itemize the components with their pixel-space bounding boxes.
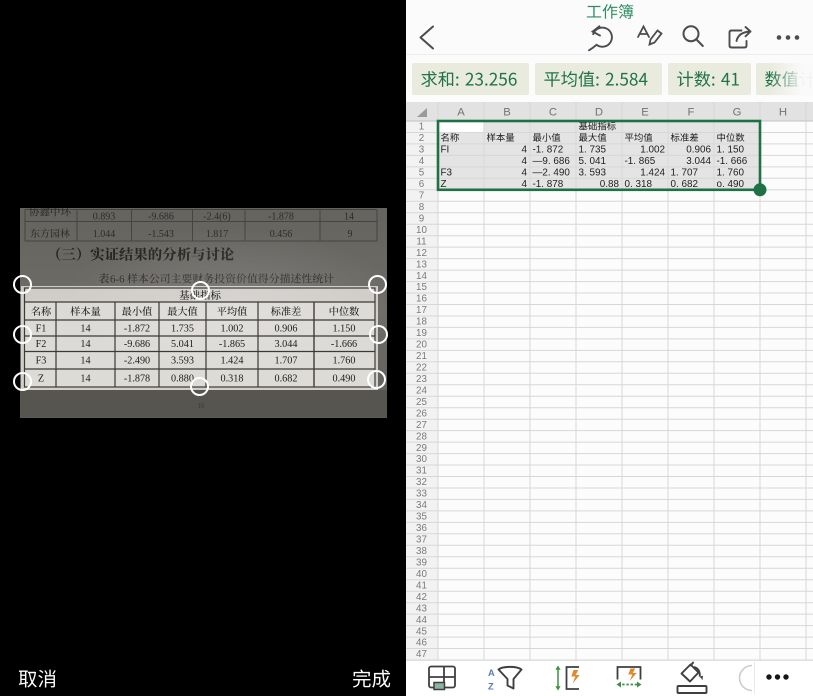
svg-text:D: D bbox=[595, 107, 603, 119]
svg-text:45: 45 bbox=[416, 626, 427, 637]
svg-text:Z: Z bbox=[441, 179, 447, 190]
svg-text:3.593: 3.593 bbox=[171, 356, 194, 367]
svg-text:36: 36 bbox=[416, 523, 427, 534]
svg-text:28: 28 bbox=[416, 431, 427, 442]
svg-text:3.044: 3.044 bbox=[275, 339, 298, 350]
svg-text:11: 11 bbox=[416, 236, 426, 247]
svg-text:1: 1 bbox=[419, 122, 424, 133]
svg-text:FI: FI bbox=[441, 144, 450, 155]
svg-text:A: A bbox=[457, 107, 465, 119]
svg-text:23: 23 bbox=[416, 374, 427, 385]
svg-text:35: 35 bbox=[416, 512, 427, 523]
svg-text:-1.878: -1.878 bbox=[124, 374, 150, 385]
svg-text:1.002: 1.002 bbox=[221, 324, 244, 335]
svg-text:32: 32 bbox=[416, 477, 427, 488]
svg-text:5.041: 5.041 bbox=[171, 339, 194, 350]
svg-text:34: 34 bbox=[416, 500, 427, 511]
svg-text:4: 4 bbox=[522, 167, 528, 178]
svg-text:15: 15 bbox=[416, 282, 427, 293]
svg-text:Z: Z bbox=[488, 682, 494, 692]
svg-text:3.044: 3.044 bbox=[686, 156, 711, 167]
svg-text:0.682: 0.682 bbox=[275, 374, 298, 385]
svg-text:14: 14 bbox=[80, 339, 90, 350]
svg-text:33: 33 bbox=[416, 489, 427, 500]
svg-text:-1.878: -1.878 bbox=[268, 212, 294, 223]
svg-text:1. 760: 1. 760 bbox=[717, 167, 745, 178]
svg-text:46: 46 bbox=[416, 638, 427, 649]
svg-text:1. 150: 1. 150 bbox=[717, 144, 745, 155]
svg-text:8: 8 bbox=[419, 202, 425, 213]
svg-text:40: 40 bbox=[416, 569, 427, 580]
svg-text:-1. 865: -1. 865 bbox=[625, 156, 656, 167]
svg-text:3. 593: 3. 593 bbox=[579, 167, 607, 178]
svg-text:26: 26 bbox=[416, 408, 427, 419]
svg-text:9: 9 bbox=[348, 229, 353, 240]
svg-text:2: 2 bbox=[419, 133, 424, 144]
svg-text:37: 37 bbox=[416, 535, 427, 546]
svg-text:0.88: 0.88 bbox=[600, 179, 620, 190]
svg-text:5: 5 bbox=[419, 168, 425, 179]
svg-text:29: 29 bbox=[416, 443, 427, 454]
svg-text:22: 22 bbox=[416, 363, 427, 374]
svg-text:-2.490: -2.490 bbox=[124, 356, 150, 367]
svg-text:A: A bbox=[488, 668, 495, 678]
svg-text:-9.686: -9.686 bbox=[148, 212, 174, 223]
svg-text:24: 24 bbox=[416, 385, 427, 396]
svg-text:0.906: 0.906 bbox=[275, 324, 298, 335]
svg-text:1.424: 1.424 bbox=[640, 167, 665, 178]
svg-text:B: B bbox=[503, 107, 511, 119]
svg-text:38: 38 bbox=[416, 546, 427, 557]
svg-text:H: H bbox=[779, 107, 787, 119]
svg-text:-1.666: -1.666 bbox=[331, 339, 357, 350]
svg-text:41: 41 bbox=[416, 580, 427, 591]
svg-text:16: 16 bbox=[416, 294, 427, 305]
svg-text:0.490: 0.490 bbox=[333, 374, 356, 385]
svg-text:1.760: 1.760 bbox=[333, 356, 356, 367]
svg-text:1. 707: 1. 707 bbox=[671, 167, 698, 178]
svg-text:4: 4 bbox=[419, 156, 425, 167]
svg-text:1.424: 1.424 bbox=[221, 356, 244, 367]
svg-text:-9.686: -9.686 bbox=[124, 339, 150, 350]
svg-text:13: 13 bbox=[416, 259, 427, 270]
svg-text:0.893: 0.893 bbox=[93, 212, 116, 223]
svg-text:0. 682: 0. 682 bbox=[671, 179, 698, 190]
svg-text:9: 9 bbox=[419, 213, 424, 224]
svg-text:14: 14 bbox=[80, 374, 90, 385]
svg-text:27: 27 bbox=[416, 420, 427, 431]
svg-text:43: 43 bbox=[416, 603, 427, 614]
svg-text:4: 4 bbox=[522, 156, 528, 167]
svg-text:14: 14 bbox=[344, 212, 354, 223]
svg-text:1.044: 1.044 bbox=[93, 229, 116, 240]
svg-text:-1. 666: -1. 666 bbox=[717, 156, 748, 167]
svg-text:18: 18 bbox=[416, 317, 427, 328]
svg-text:1. 735: 1. 735 bbox=[579, 144, 607, 155]
svg-text:-1.872: -1.872 bbox=[124, 324, 150, 335]
svg-text:3: 3 bbox=[419, 145, 425, 156]
svg-text:5. 041: 5. 041 bbox=[579, 156, 607, 167]
svg-text:20: 20 bbox=[416, 340, 427, 351]
svg-text:14: 14 bbox=[80, 356, 90, 367]
svg-text:—9. 686: —9. 686 bbox=[533, 156, 571, 167]
svg-text:44: 44 bbox=[416, 615, 427, 626]
svg-text:F: F bbox=[688, 107, 695, 119]
svg-text:0.318: 0.318 bbox=[221, 374, 244, 385]
svg-text:31: 31 bbox=[416, 466, 427, 477]
svg-text:0. 318: 0. 318 bbox=[625, 179, 653, 190]
svg-text:—2. 490: —2. 490 bbox=[533, 167, 571, 178]
svg-text:39: 39 bbox=[416, 558, 427, 569]
svg-text:-2.4(6): -2.4(6) bbox=[203, 212, 231, 223]
svg-text:7: 7 bbox=[419, 191, 424, 202]
svg-text:o. 490: o. 490 bbox=[717, 179, 745, 190]
svg-text:19: 19 bbox=[416, 328, 427, 339]
svg-text:F3: F3 bbox=[36, 356, 47, 367]
svg-text:14: 14 bbox=[416, 271, 427, 282]
svg-text:12: 12 bbox=[416, 248, 427, 259]
svg-text:-1. 878: -1. 878 bbox=[533, 179, 564, 190]
svg-text:30: 30 bbox=[416, 454, 427, 465]
svg-text:1.735: 1.735 bbox=[171, 324, 194, 335]
svg-text:-1.865: -1.865 bbox=[219, 339, 245, 350]
svg-text:17: 17 bbox=[416, 305, 427, 316]
svg-text:E: E bbox=[641, 107, 649, 119]
svg-text:21: 21 bbox=[416, 351, 427, 362]
svg-text:6: 6 bbox=[419, 179, 425, 190]
svg-text:-1. 872: -1. 872 bbox=[533, 144, 564, 155]
svg-text:C: C bbox=[549, 107, 557, 119]
svg-text:1.002: 1.002 bbox=[640, 144, 665, 155]
svg-text:10: 10 bbox=[416, 225, 427, 236]
svg-text:0.906: 0.906 bbox=[686, 144, 711, 155]
svg-text:F3: F3 bbox=[441, 167, 453, 178]
svg-text:1.150: 1.150 bbox=[333, 324, 356, 335]
svg-text:47: 47 bbox=[416, 649, 427, 660]
svg-text:42: 42 bbox=[416, 592, 427, 603]
svg-text:14: 14 bbox=[80, 324, 90, 335]
svg-text:F2: F2 bbox=[36, 339, 47, 350]
svg-text:F1: F1 bbox=[36, 324, 47, 335]
svg-text:4: 4 bbox=[522, 179, 528, 190]
svg-text:25: 25 bbox=[416, 397, 427, 408]
svg-text:16: 16 bbox=[198, 402, 206, 410]
svg-text:Z: Z bbox=[38, 374, 44, 385]
svg-text:G: G bbox=[733, 107, 742, 119]
svg-text:1.707: 1.707 bbox=[275, 356, 298, 367]
svg-text:4: 4 bbox=[522, 144, 528, 155]
